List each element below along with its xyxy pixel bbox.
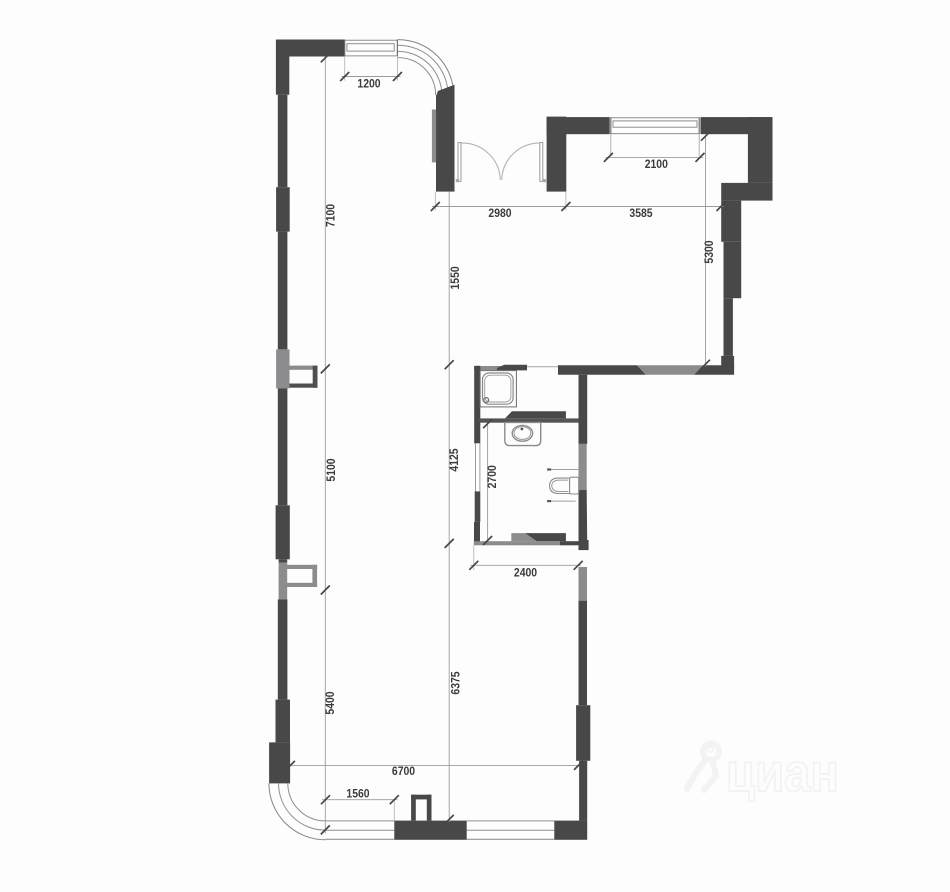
svg-text:циан: циан [726,743,839,803]
svg-text:1550: 1550 [448,266,462,289]
svg-text:5400: 5400 [323,691,337,714]
svg-text:3585: 3585 [629,206,652,220]
svg-text:4125: 4125 [447,448,461,471]
svg-text:5300: 5300 [702,240,716,263]
svg-text:2700: 2700 [485,465,499,488]
svg-text:2100: 2100 [645,157,668,171]
svg-text:6700: 6700 [392,764,415,778]
svg-text:2400: 2400 [514,565,537,579]
svg-text:6375: 6375 [449,671,463,694]
svg-text:2980: 2980 [488,206,511,220]
svg-text:5100: 5100 [324,458,338,481]
svg-text:7100: 7100 [324,204,338,227]
svg-text:1200: 1200 [357,76,380,90]
svg-text:1560: 1560 [346,786,369,800]
